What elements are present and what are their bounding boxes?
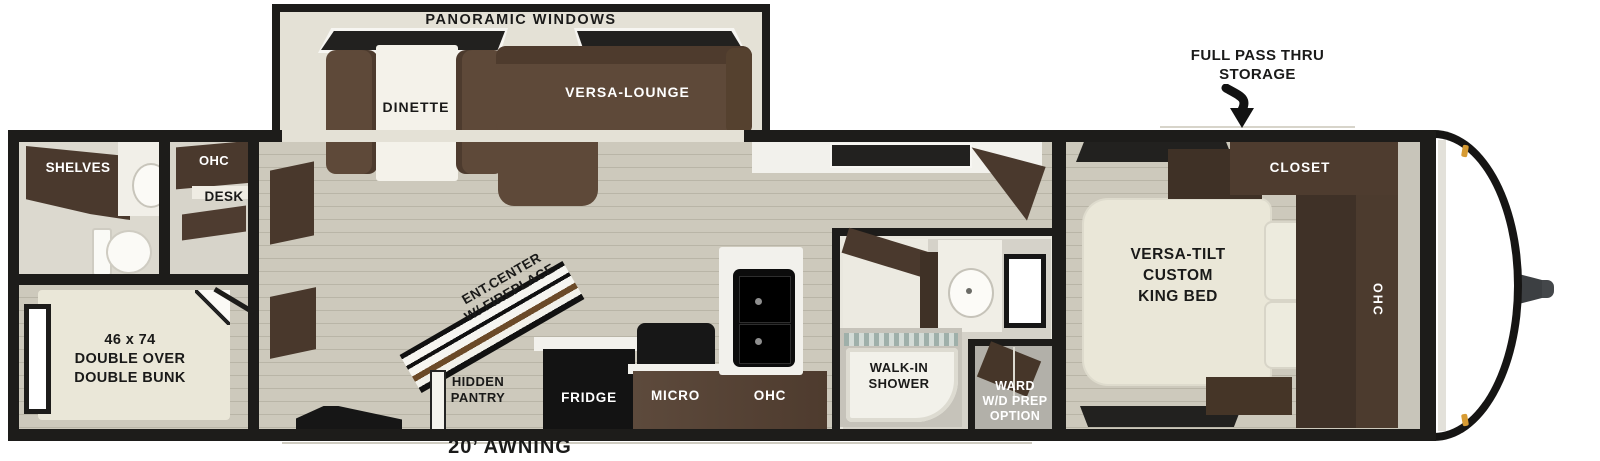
rv-floorplan: SHELVES OHC DESK 46 x 74 DOUBLE OVER DOU… — [0, 0, 1600, 461]
versa-lounge-back — [496, 46, 752, 64]
slideout-opening — [282, 130, 744, 142]
full-pass-thru-label: FULL PASS THRU STORAGE — [1150, 47, 1365, 85]
front-cap-shadow — [1438, 140, 1446, 431]
bathroom-sink-drain — [966, 288, 972, 294]
bedroom-ohc-label: OHC — [1356, 255, 1398, 345]
pass-thru-storage-strip — [1398, 142, 1422, 429]
wall-rear — [8, 130, 19, 441]
hitch-bar — [1542, 280, 1554, 298]
kitchen-window — [830, 143, 972, 168]
wall-rear-bedroom-right — [248, 130, 259, 441]
wall-bedroom-left — [1052, 130, 1066, 441]
wall-front — [1420, 130, 1436, 441]
walk-in-shower-label: WALK-IN SHOWER — [838, 360, 960, 391]
sink-basin-lower — [739, 324, 791, 364]
wall-rear-horizontal — [8, 274, 259, 285]
bunk-window — [24, 304, 51, 414]
shelves-label: SHELVES — [30, 160, 126, 176]
faucet-dot-upper — [755, 298, 762, 305]
bathroom-window — [1004, 254, 1046, 328]
storage-arrow-icon — [1216, 84, 1260, 130]
dinette-label: DINETTE — [350, 99, 482, 116]
wall-cabinet-lower — [270, 287, 316, 359]
versa-lounge-label: VERSA-LOUNGE — [545, 84, 710, 101]
faucet-dot-lower — [755, 338, 762, 345]
wall-rear-bath-divider — [159, 130, 170, 283]
rear-ohc-label: OHC — [176, 153, 252, 169]
microwave — [637, 323, 715, 369]
desk-label: DESK — [196, 189, 252, 205]
wall-cabinet-upper — [270, 161, 314, 244]
shower-glass — [844, 333, 958, 346]
bunk-label: 46 x 74 DOUBLE OVER DOUBLE BUNK — [50, 331, 210, 388]
versa-lounge-armrest — [726, 48, 752, 134]
micro-label: MICRO — [633, 388, 718, 404]
wall-bottom — [8, 429, 1436, 441]
awning-line — [282, 442, 1032, 444]
fridge-label: FRIDGE — [543, 390, 635, 406]
toilet-bowl — [106, 230, 152, 274]
closet-column — [1296, 195, 1356, 428]
bed-foot-cabinet — [1206, 377, 1292, 415]
king-bed-label: VERSA-TILT CUSTOM KING BED — [1090, 245, 1266, 308]
hidden-pantry-label: HIDDEN PANTRY — [436, 374, 520, 405]
closet-label: CLOSET — [1243, 160, 1357, 176]
sink-basin-upper — [739, 276, 791, 323]
ward-label: WARD W/D PREP OPTION — [966, 379, 1064, 424]
panoramic-windows-label: PANORAMIC WINDOWS — [282, 12, 760, 29]
kitchen-ohc-label: OHC — [725, 388, 815, 404]
